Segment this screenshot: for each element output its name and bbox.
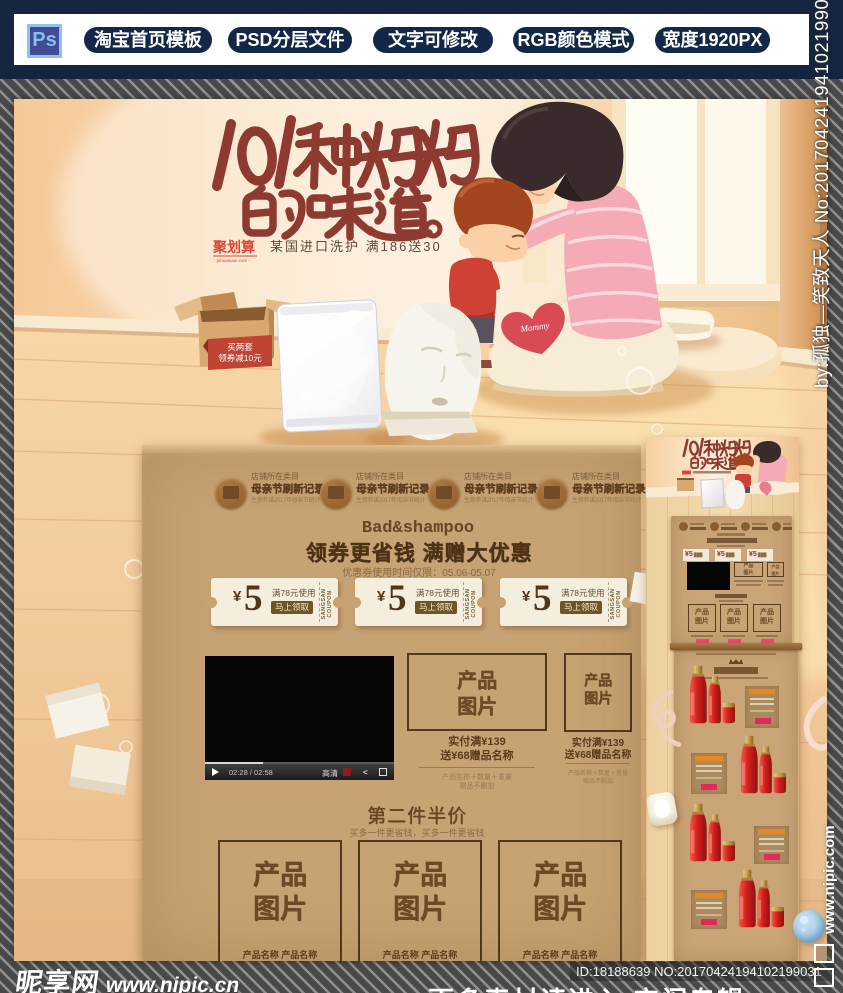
- svg-text:领券减10元: 领券减10元: [218, 353, 262, 363]
- svg-text:买两套: 买两套: [227, 342, 253, 352]
- svg-text:聚划算: 聚划算: [212, 239, 255, 255]
- svg-text:某国进口洗护 满186送30: 某国进口洗护 满186送30: [270, 239, 442, 254]
- svg-text:- juhuasuan.com -: - juhuasuan.com -: [214, 258, 251, 263]
